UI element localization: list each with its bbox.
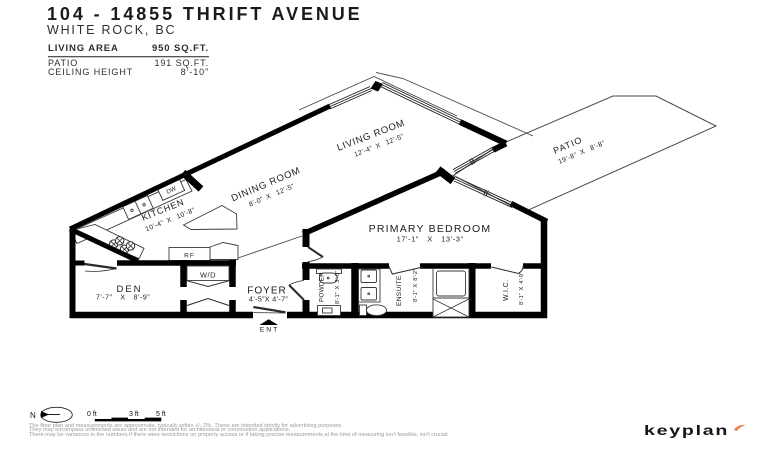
svg-text:17’-1” X 13’-3”: 17’-1” X 13’-3” [397,235,464,244]
svg-text:0 ft: 0 ft [87,411,97,418]
svg-text:POWDER: POWDER [319,272,326,302]
svg-text:W/D: W/D [200,271,216,280]
svg-text:8’-1” X 3’-0”: 8’-1” X 3’-0” [335,271,341,304]
svg-text:5 ft: 5 ft [156,411,166,418]
svg-text:7’-7” X 8’-9”: 7’-7” X 8’-9” [96,295,150,302]
svg-text:ENSUITE: ENSUITE [396,275,403,306]
svg-text:ENT: ENT [260,327,280,334]
svg-text:N: N [30,411,36,420]
svg-text:4’-5”X 4’-7”: 4’-5”X 4’-7” [249,295,288,304]
svg-text:W.I.C.: W.I.C. [503,280,510,301]
svg-text:8’-1” X 4’-9”: 8’-1” X 4’-9” [519,272,525,305]
svg-text:PRIMARY BEDROOM: PRIMARY BEDROOM [369,223,492,235]
svg-text:RF: RF [184,253,195,260]
svg-text:3 ft: 3 ft [129,411,139,418]
svg-text:8’-1” X 8’-2”: 8’-1” X 8’-2” [413,269,419,302]
svg-text:DEN: DEN [116,284,142,295]
